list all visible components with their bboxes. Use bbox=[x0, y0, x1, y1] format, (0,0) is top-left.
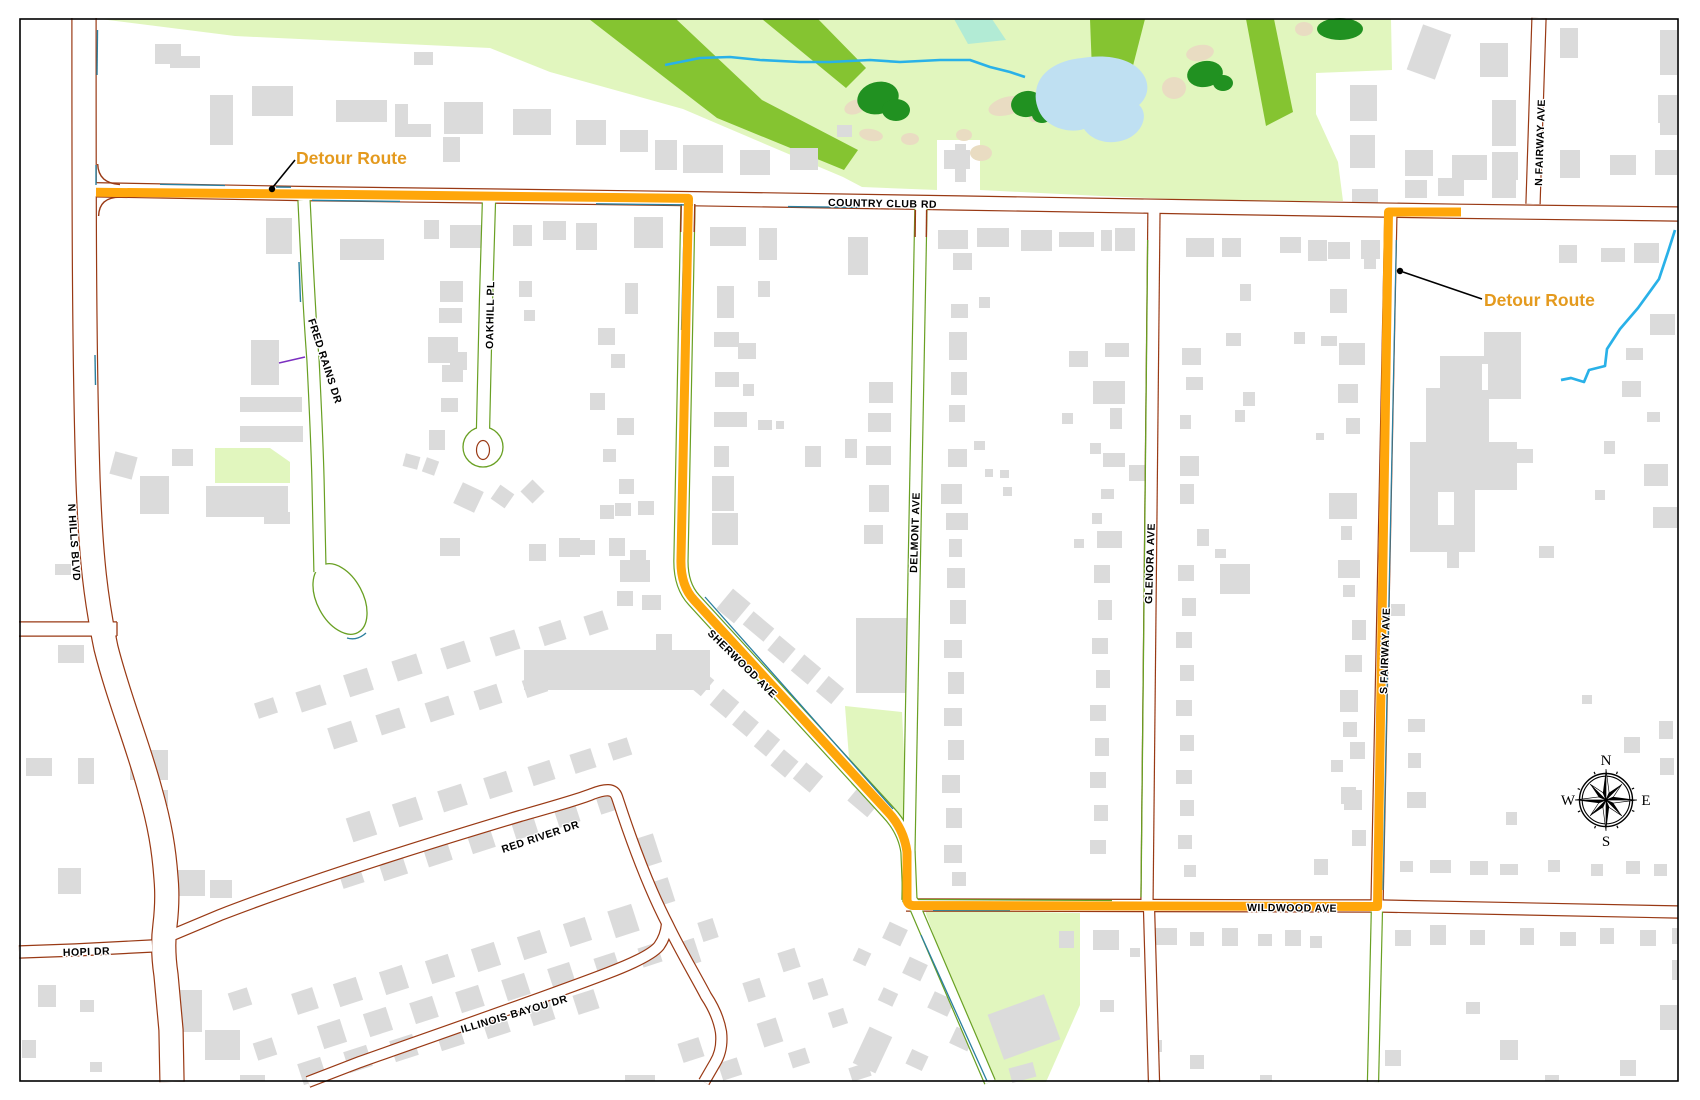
svg-text:N: N bbox=[1601, 753, 1612, 769]
svg-text:OAKHILL PL: OAKHILL PL bbox=[484, 281, 497, 349]
svg-text:Detour Route: Detour Route bbox=[1484, 290, 1595, 310]
svg-text:COUNTRY CLUB RD: COUNTRY CLUB RD bbox=[828, 197, 937, 211]
svg-text:W: W bbox=[1561, 793, 1576, 809]
svg-text:Detour Route: Detour Route bbox=[296, 148, 407, 168]
svg-text:S: S bbox=[1602, 834, 1610, 850]
svg-text:HOPI DR: HOPI DR bbox=[63, 945, 111, 959]
svg-text:E: E bbox=[1641, 793, 1650, 809]
svg-text:WILDWOOD AVE: WILDWOOD AVE bbox=[1247, 902, 1337, 915]
